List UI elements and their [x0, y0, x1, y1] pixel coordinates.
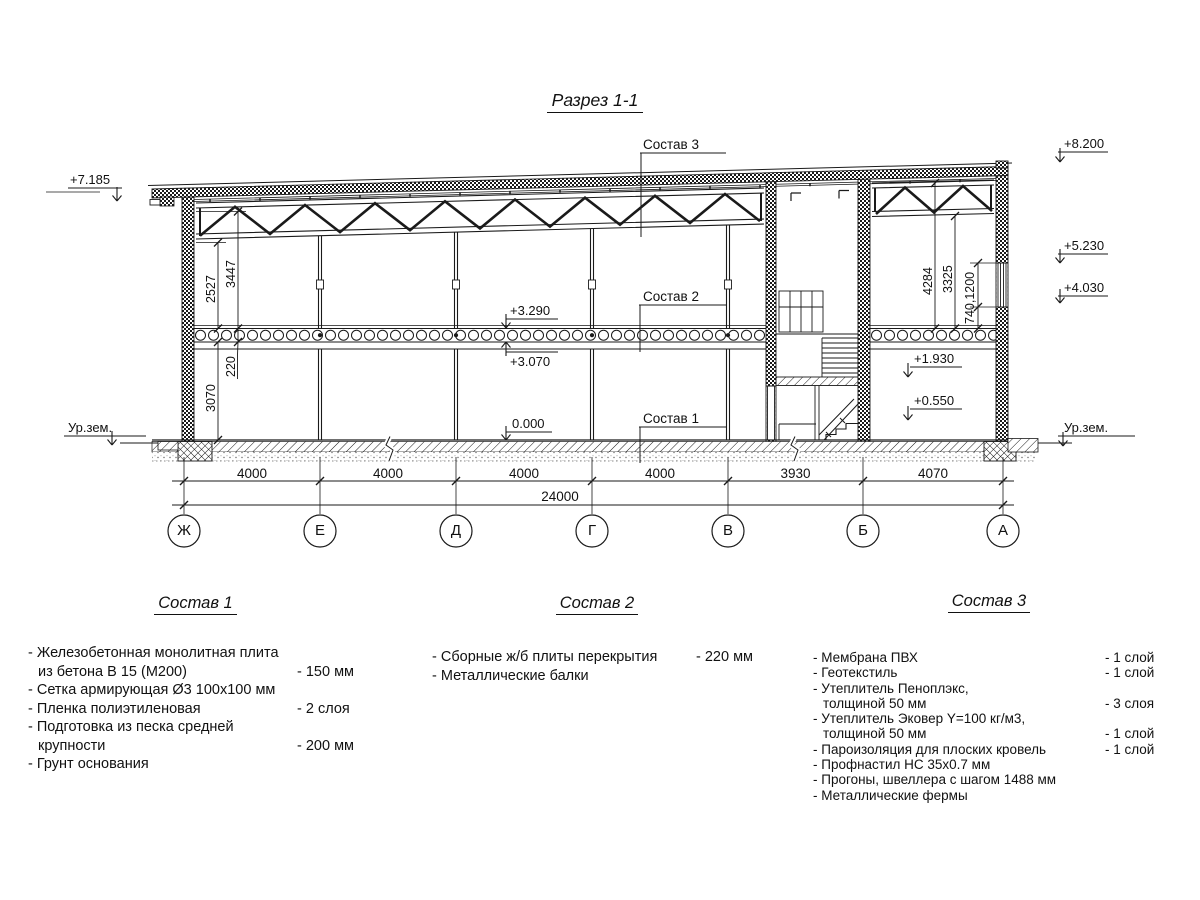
legend-3-heading: Состав 3: [813, 594, 1165, 616]
total-dim-24000: 24000: [505, 489, 615, 504]
axis-bubble-g: Г: [576, 516, 608, 546]
legend-item: крупности- 200 мм: [28, 737, 363, 756]
span-dim-5: 3930: [740, 466, 851, 481]
legend-3-body: - Мембрана ПВХ- 1 слой - Геотекстиль- 1 …: [813, 650, 1165, 803]
legend-sostav-2: Состав 2 - Сборные ж/б плиты перекрытия-…: [432, 594, 762, 685]
span-dim-1: 4000: [197, 466, 307, 481]
elevation-mark-5230: +5.230: [1064, 238, 1104, 253]
vdim-3070: 3070: [204, 384, 219, 412]
vdim-740-1200: 740,1200: [963, 272, 978, 324]
structure-linework: [46, 161, 1072, 461]
span-dim-2: 4000: [333, 466, 443, 481]
legend-item: - Подготовка из песка средней: [28, 718, 363, 737]
legend-item: - Пароизоляция для плоских кровель- 1 сл…: [813, 742, 1165, 757]
elevation-mark-4030: +4.030: [1064, 280, 1104, 295]
legend-item: - Прогоны, швеллера с шагом 1488 мм: [813, 772, 1165, 787]
axis-bubble-zh: Ж: [168, 516, 200, 546]
drawing-sheet: Разрез 1-1 +7.185 Ур.зем. +8.200 +5.230 …: [0, 0, 1200, 900]
legend-item: толщиной 50 мм- 1 слой: [813, 726, 1165, 741]
legend-item: - Металлические балки: [432, 667, 762, 686]
legend-item: - Утеплитель Эковер Y=100 кг/м3,: [813, 711, 1165, 726]
elevation-mark-0000: 0.000: [512, 416, 545, 431]
vdim-3447: 3447: [224, 260, 239, 288]
callout-sostav-1: Состав 1: [643, 411, 699, 426]
vdim-2527: 2527: [204, 275, 219, 303]
legend-item: - Пленка полиэтиленовая- 2 слоя: [28, 700, 363, 719]
drawing-title-text: Разрез 1-1: [547, 90, 644, 113]
elevation-mark-1930: +1.930: [914, 351, 954, 366]
axis-bubble-d: Д: [440, 516, 472, 546]
callout-sostav-3: Состав 3: [643, 137, 699, 152]
vdim-3325: 3325: [941, 265, 956, 293]
ground-level-label-right: Ур.зем.: [1064, 420, 1108, 435]
legend-2-heading: Состав 2: [432, 594, 762, 616]
legend-item: - Мембрана ПВХ- 1 слой: [813, 650, 1165, 665]
span-dim-4: 4000: [605, 466, 715, 481]
legend-sostav-3: Состав 3 - Мембрана ПВХ- 1 слой - Геотек…: [813, 594, 1165, 803]
elevation-mark-7185: +7.185: [70, 172, 110, 187]
elevation-mark-3070: +3.070: [510, 354, 550, 369]
legend-item: - Сборные ж/б плиты перекрытия- 220 мм: [432, 648, 762, 667]
axis-bubble-a: А: [987, 516, 1019, 546]
elevation-mark-3290: +3.290: [510, 303, 550, 318]
legend-item: - Грунт основания: [28, 755, 363, 774]
axis-bubble-e: Е: [304, 516, 336, 546]
axis-bubble-b: Б: [847, 516, 879, 546]
legend-item: толщиной 50 мм- 3 слоя: [813, 696, 1165, 711]
legend-2-body: - Сборные ж/б плиты перекрытия- 220 мм -…: [432, 648, 762, 685]
legend-item: - Сетка армирующая Ø3 100х100 мм: [28, 681, 363, 700]
legend-item: - Профнастил НС 35х0.7 мм: [813, 757, 1165, 772]
axis-bubble-v: В: [712, 516, 744, 546]
elevation-mark-8200: +8.200: [1064, 136, 1104, 151]
ground-level-label-left: Ур.зем.: [68, 420, 112, 435]
legend-item: - Металлические фермы: [813, 788, 1165, 803]
span-dim-3: 4000: [469, 466, 579, 481]
legend-1-body: - Железобетонная монолитная плита из бет…: [28, 644, 363, 774]
legend-1-heading: Состав 1: [28, 594, 363, 616]
legend-item: - Геотекстиль- 1 слой: [813, 665, 1165, 680]
vdim-220: 220: [224, 356, 239, 377]
drawing-title: Разрез 1-1: [510, 90, 680, 111]
legend-item: - Железобетонная монолитная плита: [28, 644, 363, 663]
elevation-mark-0550: +0.550: [914, 393, 954, 408]
legend-sostav-1: Состав 1 - Железобетонная монолитная пли…: [28, 594, 363, 774]
vdim-4284: 4284: [921, 267, 936, 295]
callout-sostav-2: Состав 2: [643, 289, 699, 304]
legend-item: - Утеплитель Пеноплэкс,: [813, 681, 1165, 696]
span-dim-6: 4070: [878, 466, 988, 481]
legend-item: из бетона В 15 (М200)- 150 мм: [28, 663, 363, 682]
